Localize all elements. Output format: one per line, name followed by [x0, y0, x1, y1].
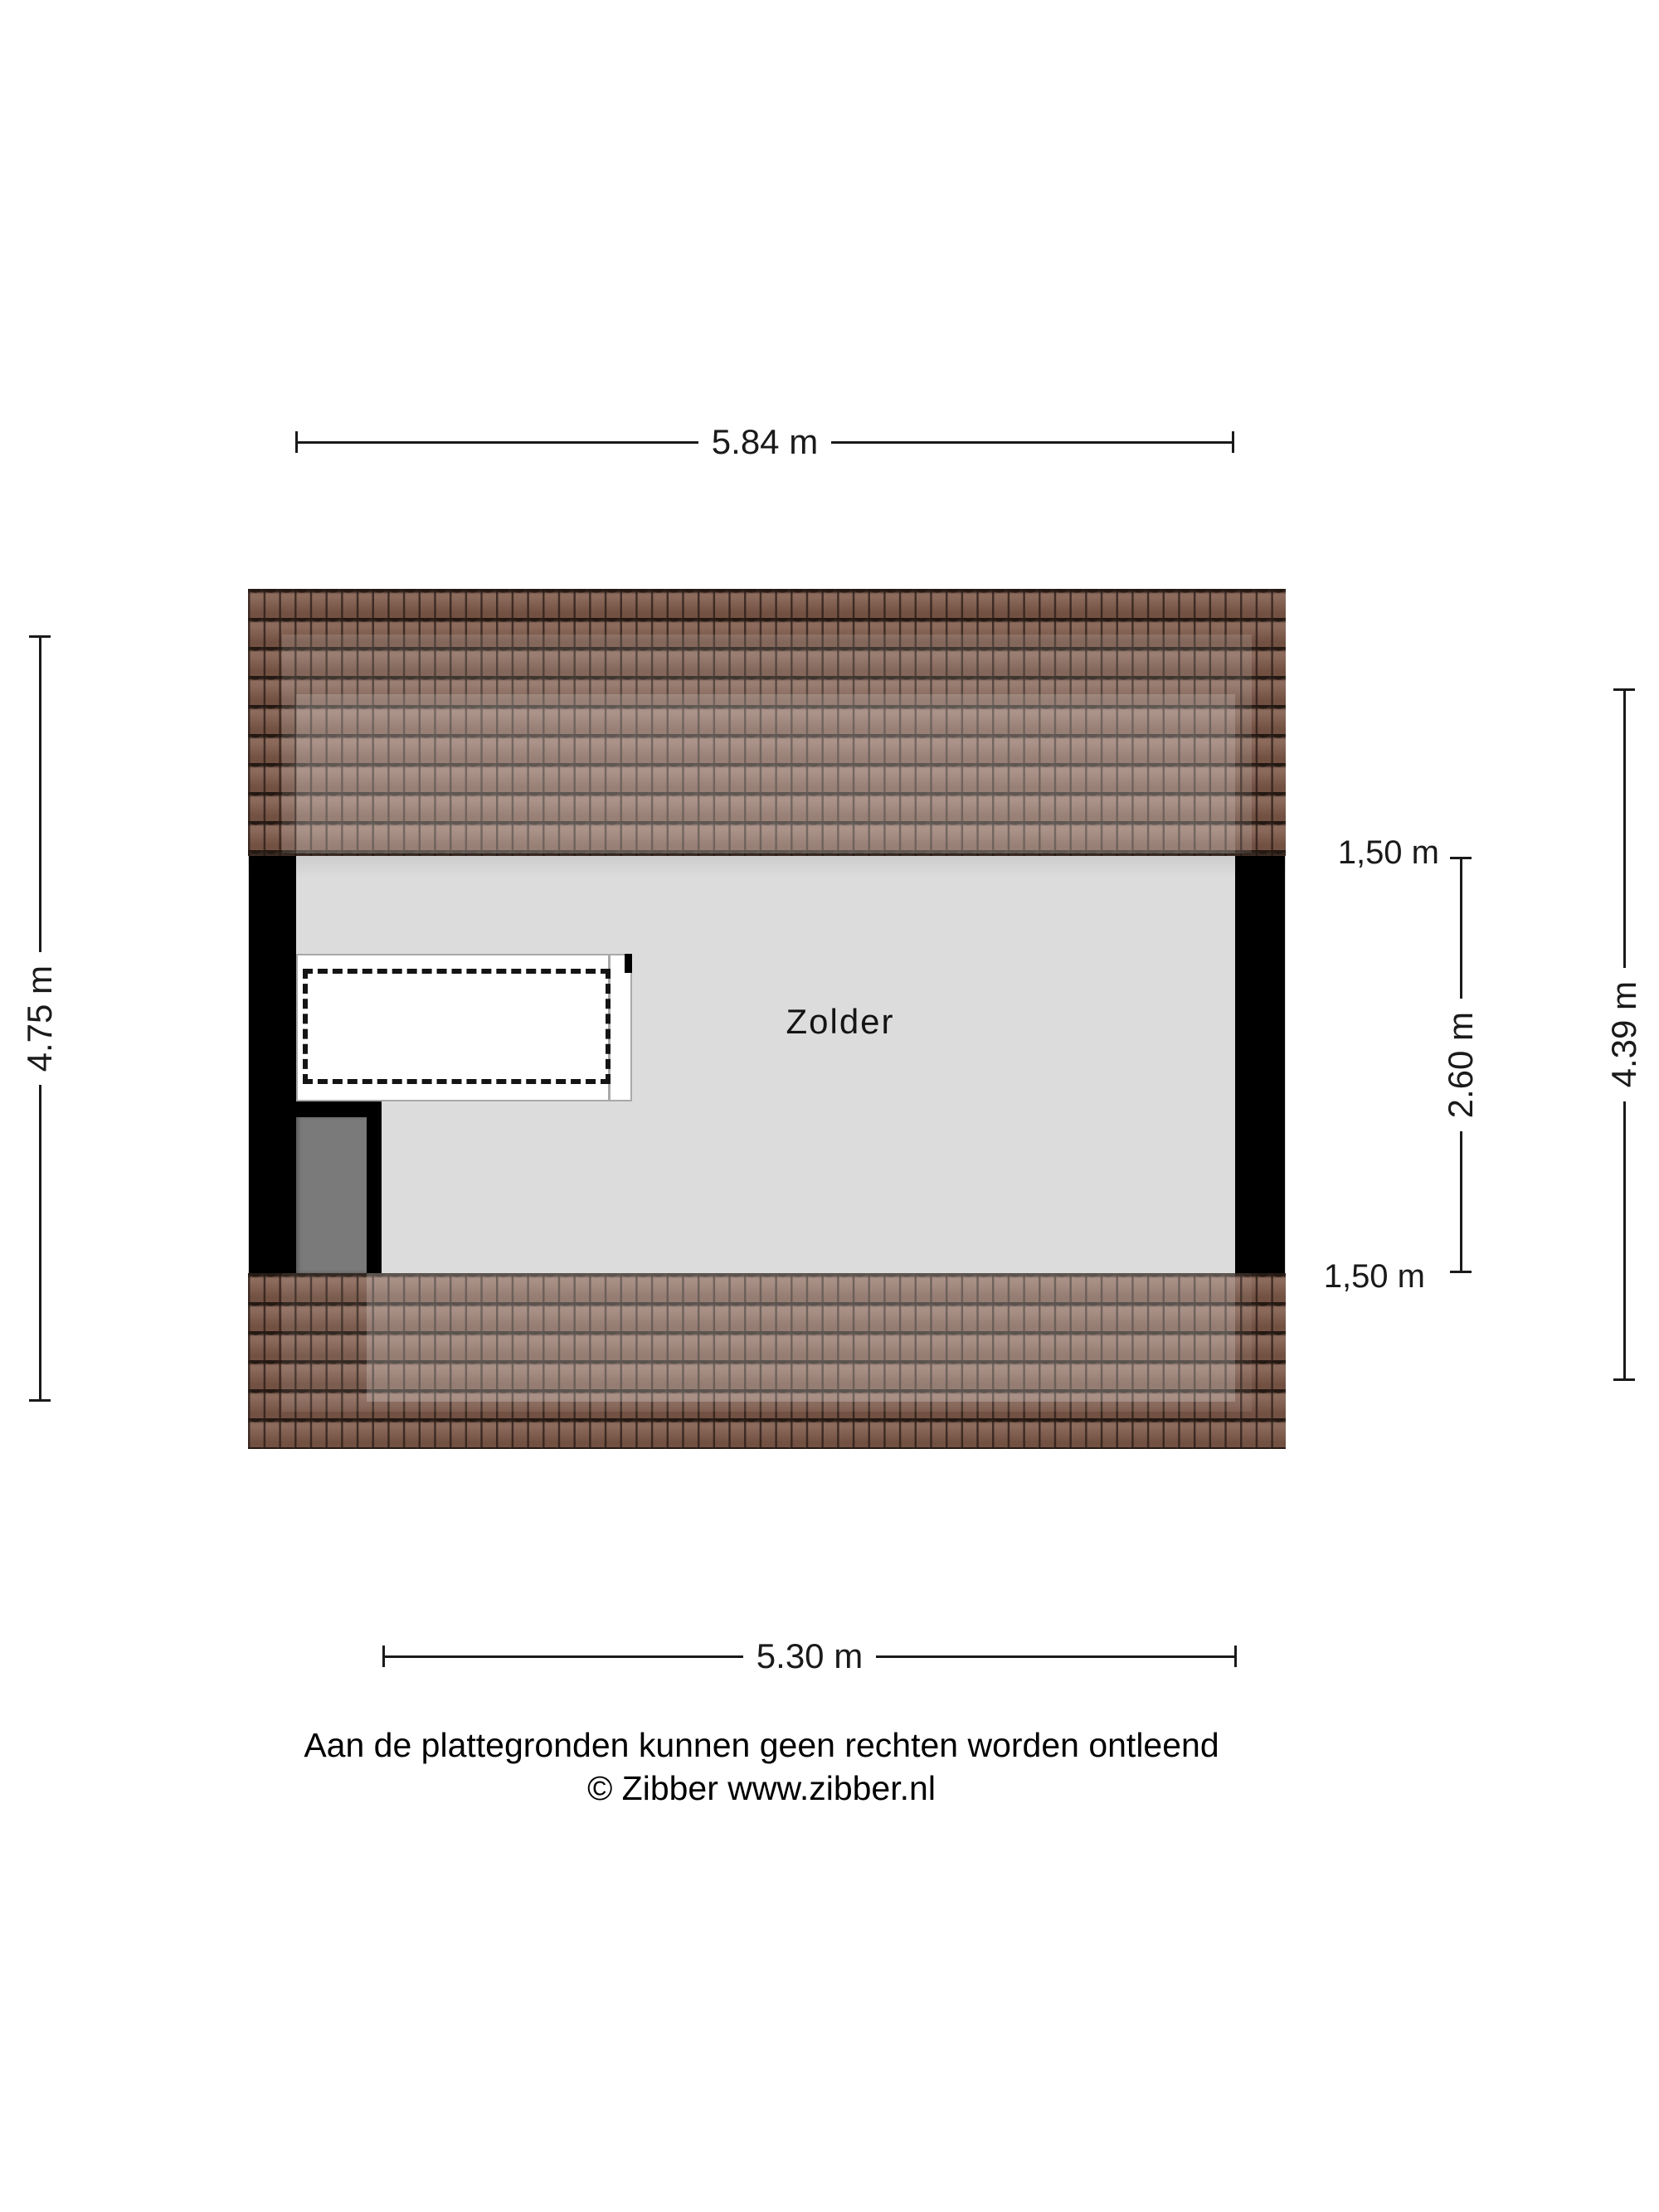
dimension-line: [385, 1655, 743, 1658]
dimension-tick: [1613, 1378, 1635, 1381]
dimension-ceiling-height-label: 2.60 m: [1441, 999, 1481, 1131]
disclaimer-text: Aan de plattegronden kunnen geen rechten…: [0, 1723, 1523, 1767]
door-panel: [296, 1117, 367, 1273]
dimension-line: [1623, 691, 1626, 968]
stair-wall-vertical: [367, 1101, 382, 1273]
roof-tiles-bottom: [248, 1273, 1286, 1449]
dimension-tick: [1232, 431, 1234, 453]
dimension-tick: [1234, 1646, 1237, 1667]
dimension-right-height-label: 4.39 m: [1604, 968, 1644, 1101]
roof-tiles-top: [248, 589, 1286, 856]
dimension-tick: [29, 1399, 51, 1402]
roof-bottom-overlay-inner: [367, 1273, 1235, 1402]
dimension-line: [39, 638, 41, 952]
dimension-line: [39, 1085, 41, 1399]
dimension-left-height-label: 4.75 m: [20, 952, 60, 1085]
dimension-bottom-width: 5.30 m: [382, 1637, 1237, 1675]
label-headroom-top: 1,50 m: [1269, 833, 1439, 873]
floor-plan: Zolder: [248, 589, 1286, 1449]
dimension-line: [831, 441, 1232, 444]
dimension-ceiling-height: 2.60 m: [1442, 857, 1480, 1273]
room-label: Zolder: [716, 1002, 965, 1042]
dimension-right-height: 4.39 m: [1605, 688, 1643, 1381]
copyright-text: © Zibber www.zibber.nl: [0, 1767, 1523, 1810]
stair-opening: [296, 954, 632, 1101]
dimension-line: [1460, 859, 1462, 999]
right-wall: [1235, 856, 1285, 1273]
dimension-line: [1623, 1101, 1626, 1378]
dimension-line: [1460, 1131, 1462, 1271]
dimension-left-height: 4.75 m: [21, 635, 59, 1402]
footer-disclaimer: Aan de plattegronden kunnen geen rechten…: [0, 1723, 1523, 1810]
wall-stub: [625, 954, 632, 973]
dimension-bottom-width-label: 5.30 m: [743, 1637, 876, 1675]
floor-plan-page: 5.84 m 4.75 m 4.39 m 2.60 m 1,50 m 1,50 …: [0, 0, 1659, 2212]
left-wall: [249, 856, 296, 1273]
dimension-tick: [1450, 1271, 1472, 1273]
dimension-line: [876, 1655, 1234, 1658]
dimension-line: [298, 441, 698, 444]
stair-opening-dashed-outline: [303, 969, 611, 1084]
dimension-top-width-label: 5.84 m: [698, 423, 831, 461]
dimension-top-width: 5.84 m: [295, 423, 1234, 461]
roof-top-overlay-inner: [296, 694, 1235, 853]
